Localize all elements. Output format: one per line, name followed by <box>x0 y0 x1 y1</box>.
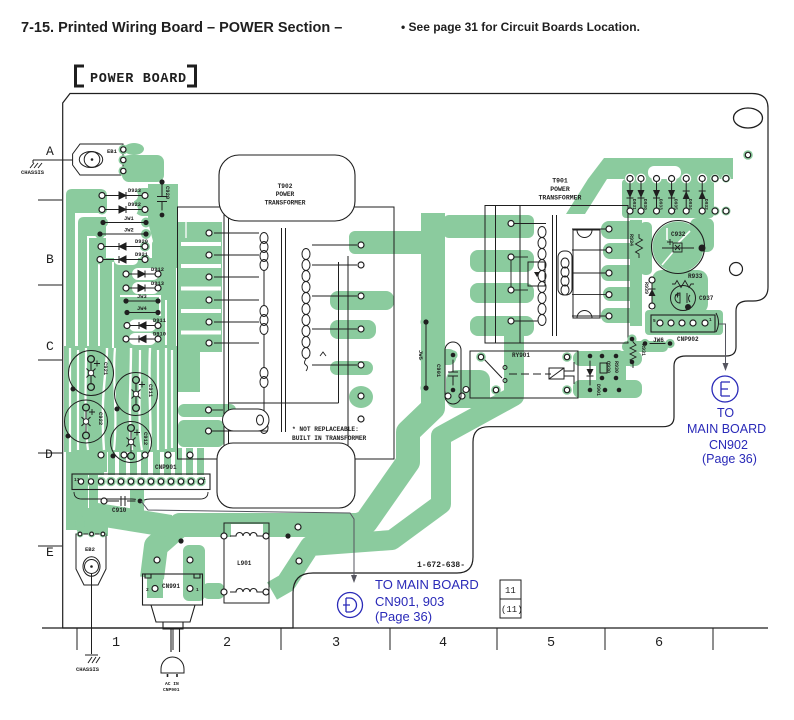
svg-text:2: 2 <box>223 636 231 651</box>
svg-text:D913: D913 <box>151 281 164 287</box>
svg-text:JW1: JW1 <box>124 216 134 222</box>
svg-text:CN902: CN902 <box>709 438 748 452</box>
svg-text:CNP902: CNP902 <box>677 336 699 343</box>
svg-text:TO: TO <box>717 406 734 420</box>
svg-text:D933: D933 <box>658 199 664 210</box>
svg-text:(11): (11) <box>501 605 523 615</box>
svg-text:D931: D931 <box>631 199 637 210</box>
svg-text:1: 1 <box>203 476 206 482</box>
svg-text:CN991: CN991 <box>162 583 180 590</box>
svg-text:C937: C937 <box>699 295 714 302</box>
svg-text:TRANSFORMER: TRANSFORMER <box>539 195 582 202</box>
svg-text:D912: D912 <box>151 267 164 273</box>
svg-text:T902: T902 <box>278 183 293 190</box>
svg-text:D923: D923 <box>128 188 141 194</box>
svg-text:TO MAIN BOARD: TO MAIN BOARD <box>375 577 479 592</box>
svg-text:R939: R939 <box>643 282 649 294</box>
svg-text:D910: D910 <box>153 332 166 338</box>
svg-text:D920: D920 <box>135 239 148 245</box>
svg-text:D901: D901 <box>595 384 601 396</box>
svg-text:1: 1 <box>112 636 120 651</box>
svg-text:C932: C932 <box>671 231 686 238</box>
svg-text:C910: C910 <box>112 507 127 514</box>
svg-text:5: 5 <box>547 636 555 651</box>
svg-text:13: 13 <box>74 477 80 483</box>
svg-text:E: E <box>46 545 54 560</box>
svg-text:1: 1 <box>196 587 199 593</box>
svg-text:CHASSIS: CHASSIS <box>21 169 45 176</box>
svg-text:C920: C920 <box>164 186 171 199</box>
svg-text:C912: C912 <box>142 432 149 445</box>
svg-text:(Page 36): (Page 36) <box>702 452 757 466</box>
svg-text:D932: D932 <box>703 199 709 210</box>
svg-text:CNP901: CNP901 <box>163 687 180 693</box>
svg-text:D934: D934 <box>687 199 693 210</box>
svg-text:1: 1 <box>709 317 712 323</box>
svg-text:EB2: EB2 <box>85 546 95 553</box>
svg-text:MAIN BOARD: MAIN BOARD <box>687 422 766 436</box>
svg-text:2: 2 <box>146 587 149 593</box>
svg-text:B: B <box>46 252 54 267</box>
svg-text:1-672-638-: 1-672-638- <box>417 561 465 570</box>
svg-text:D921: D921 <box>135 252 148 258</box>
svg-text:C922: C922 <box>97 412 104 425</box>
svg-text:7-15. Printed Wiring Board – P: 7-15. Printed Wiring Board – POWER Secti… <box>21 20 342 36</box>
svg-text:T901: T901 <box>552 178 568 185</box>
svg-text:(Page 36): (Page 36) <box>375 609 432 624</box>
svg-text:R933: R933 <box>688 273 703 280</box>
svg-text:JW4: JW4 <box>137 306 147 312</box>
svg-text:R934: R934 <box>628 234 634 246</box>
svg-text:TRANSFORMER: TRANSFORMER <box>265 200 306 207</box>
svg-text:11: 11 <box>505 586 516 596</box>
svg-text:D911: D911 <box>153 318 166 324</box>
svg-text:* NOT REPLACEABLE:: * NOT REPLACEABLE: <box>292 426 359 433</box>
svg-text:L901: L901 <box>237 560 252 567</box>
svg-text:JW5: JW5 <box>417 350 424 361</box>
svg-text:6: 6 <box>655 636 663 651</box>
svg-text:POWER: POWER <box>276 191 295 198</box>
svg-text:JW3: JW3 <box>137 294 147 300</box>
svg-text:C921: C921 <box>102 362 109 376</box>
svg-text:R931: R931 <box>640 344 646 356</box>
svg-text:AC IN: AC IN <box>165 681 179 687</box>
svg-text:D930: D930 <box>642 199 648 210</box>
svg-text:D922: D922 <box>128 202 141 208</box>
svg-text:D935: D935 <box>673 199 679 210</box>
svg-text:3: 3 <box>332 636 340 651</box>
svg-text:4: 4 <box>439 636 447 651</box>
svg-text:JW6: JW6 <box>653 337 664 344</box>
svg-text:CNP901: CNP901 <box>155 464 177 471</box>
svg-text:RY901: RY901 <box>512 352 530 359</box>
svg-text:JW2: JW2 <box>124 228 134 234</box>
svg-text:EB1: EB1 <box>107 148 118 155</box>
svg-text:D: D <box>45 447 53 462</box>
svg-text:A: A <box>46 144 54 159</box>
svg-text:C: C <box>46 339 54 354</box>
svg-text:Q930: Q930 <box>605 361 611 373</box>
svg-text:C911: C911 <box>147 384 154 398</box>
svg-text:R930: R930 <box>613 361 619 373</box>
svg-text:• See page 31 for Circuit Boar: • See page 31 for Circuit Boards Locatio… <box>401 20 640 34</box>
svg-text:CHASSIS: CHASSIS <box>76 666 100 673</box>
svg-text:POWER BOARD: POWER BOARD <box>90 72 187 87</box>
svg-text:5: 5 <box>653 318 656 324</box>
svg-text:BUILT IN TRANSFORMER: BUILT IN TRANSFORMER <box>292 435 367 442</box>
svg-text:CN901, 903: CN901, 903 <box>375 594 444 609</box>
svg-text:C901: C901 <box>435 364 442 378</box>
svg-text:POWER: POWER <box>550 186 570 193</box>
